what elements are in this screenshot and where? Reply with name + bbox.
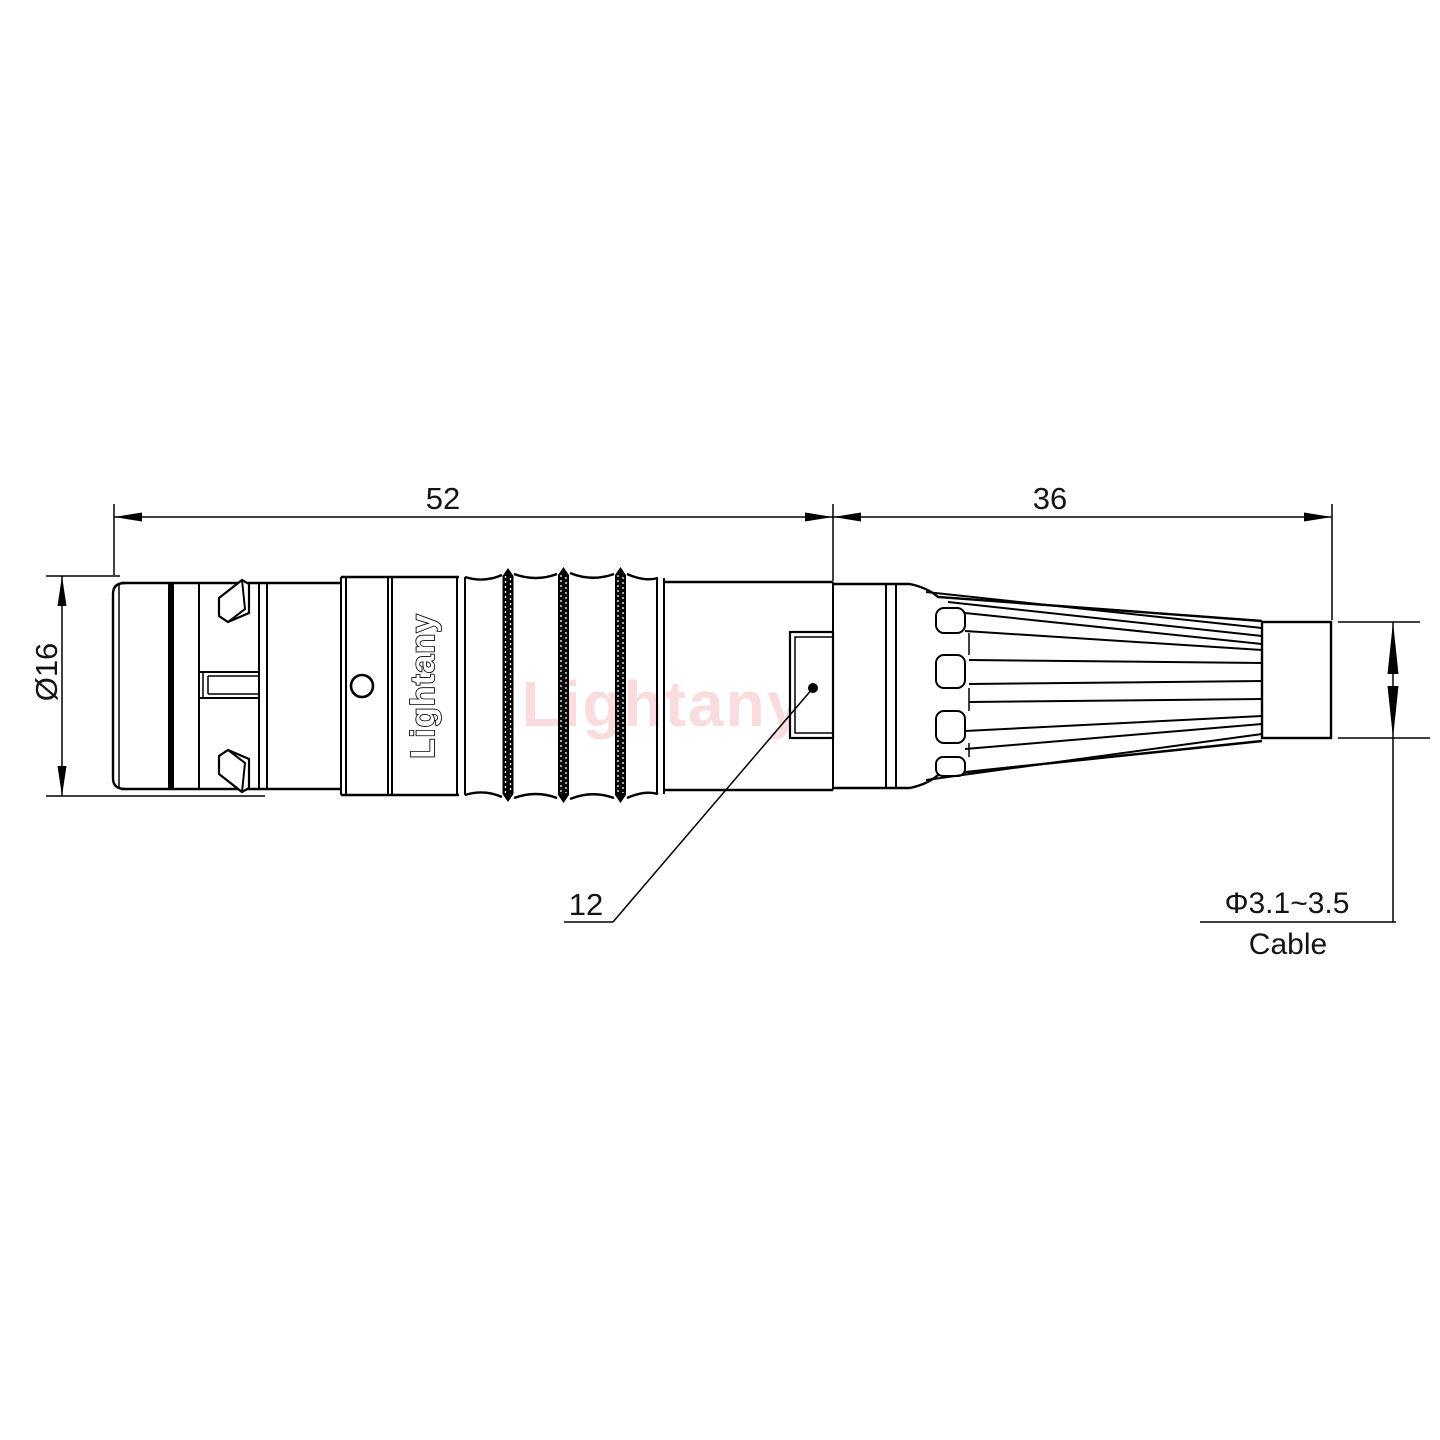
strain-relief bbox=[833, 584, 1331, 788]
rib-lines bbox=[926, 592, 1262, 780]
keying-hole bbox=[351, 675, 373, 697]
dim-dia16-text: Ø16 bbox=[29, 643, 64, 702]
latch-claw-top bbox=[219, 580, 249, 622]
leader-dot bbox=[808, 683, 818, 693]
knurl-band-3 bbox=[615, 567, 626, 803]
cable-word-text: Cable bbox=[1249, 928, 1327, 961]
knurl-band-1 bbox=[503, 568, 514, 802]
dim-52-text: 52 bbox=[426, 481, 460, 516]
latch-slot bbox=[199, 672, 259, 698]
dim-body-length: 52 bbox=[114, 481, 833, 575]
dim-12-text: 12 bbox=[569, 887, 603, 922]
drawing-canvas: Lightany bbox=[0, 0, 1440, 1440]
dim-36-text: 36 bbox=[1033, 481, 1067, 516]
knurl-band-2 bbox=[558, 567, 569, 803]
connector-technical-drawing: Lightany bbox=[0, 0, 1440, 1440]
latch-claw-bottom bbox=[219, 750, 249, 792]
dim-rear-length: 36 bbox=[833, 481, 1332, 620]
cable-range-text: Φ3.1~3.5 bbox=[1225, 887, 1350, 920]
cable-entry-block bbox=[1262, 622, 1331, 738]
body-brand-label: Lightany bbox=[404, 613, 441, 759]
rib-roots bbox=[936, 608, 969, 776]
